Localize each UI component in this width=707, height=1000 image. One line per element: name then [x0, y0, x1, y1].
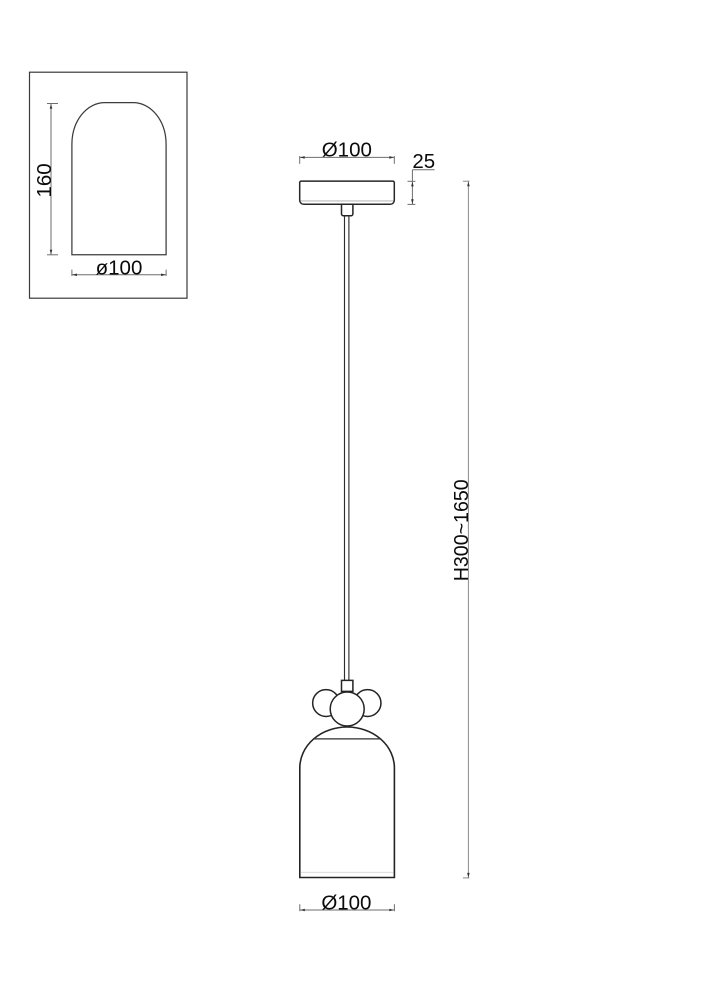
svg-text:Ø100: Ø100	[322, 139, 372, 162]
svg-text:160: 160	[33, 163, 56, 197]
svg-text:ø100: ø100	[96, 256, 143, 279]
svg-text:H300~1650: H300~1650	[451, 479, 473, 581]
svg-text:Ø100: Ø100	[321, 892, 371, 915]
svg-text:25: 25	[412, 150, 435, 173]
